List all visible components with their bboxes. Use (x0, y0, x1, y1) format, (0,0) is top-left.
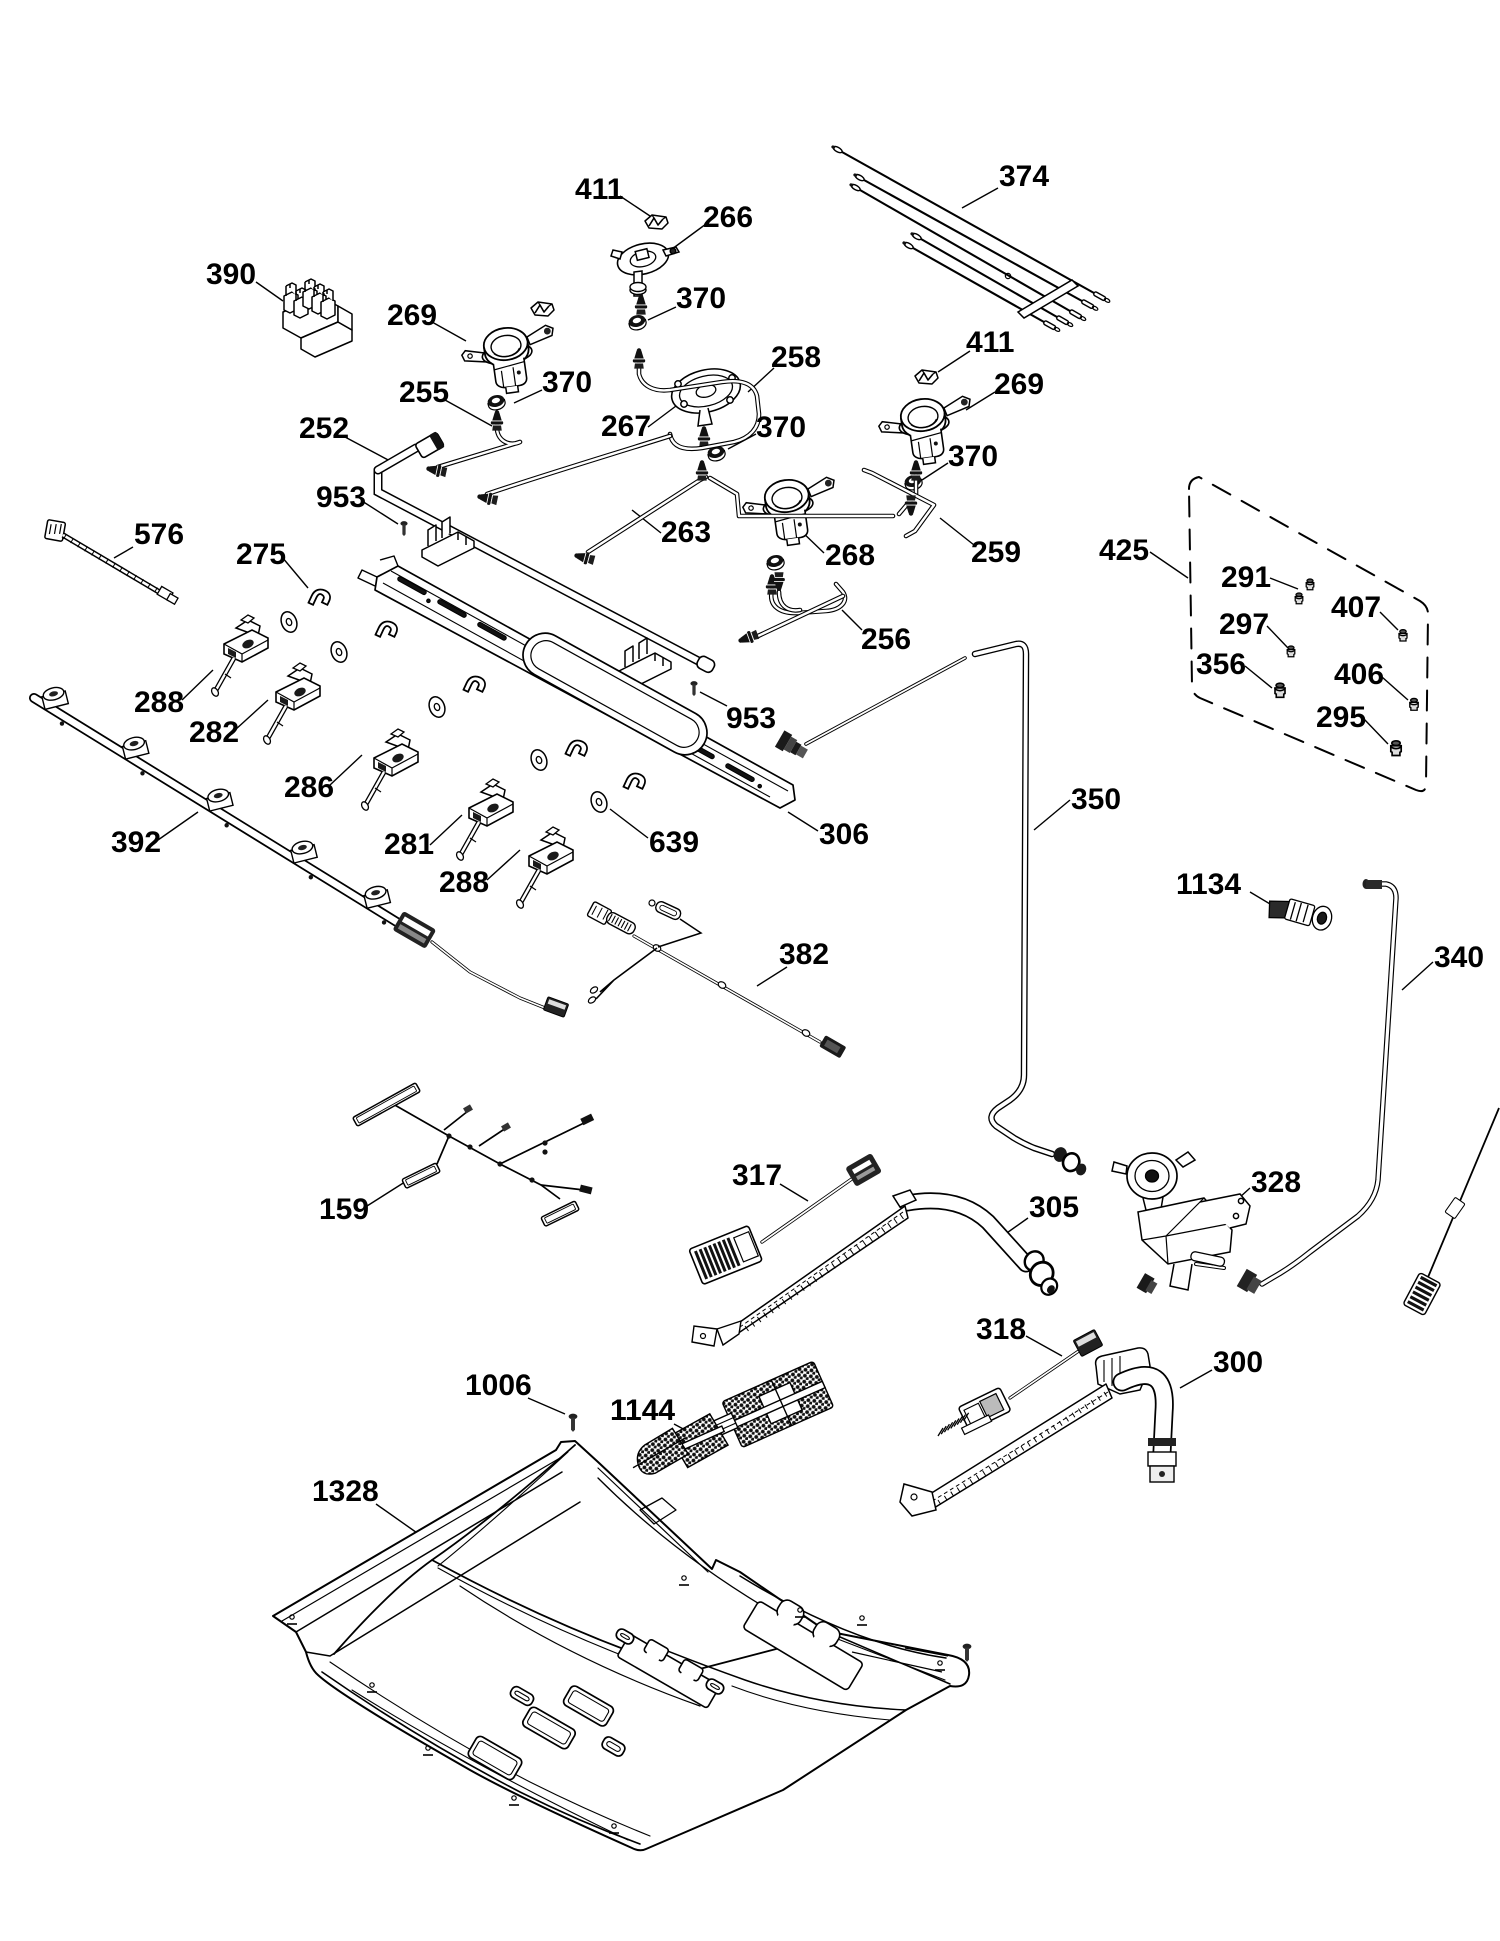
svg-text:258: 258 (771, 341, 821, 374)
svg-text:953: 953 (726, 702, 776, 735)
svg-text:288: 288 (134, 686, 184, 719)
svg-text:639: 639 (649, 826, 699, 859)
svg-text:263: 263 (661, 516, 711, 549)
svg-text:1134: 1134 (1176, 868, 1241, 901)
svg-text:317: 317 (732, 1159, 782, 1192)
svg-text:411: 411 (575, 173, 623, 206)
svg-text:370: 370 (756, 411, 806, 444)
svg-text:576: 576 (134, 518, 184, 551)
svg-text:288: 288 (439, 866, 489, 899)
svg-text:340: 340 (1434, 941, 1484, 974)
svg-text:1144: 1144 (610, 1394, 675, 1427)
svg-text:159: 159 (319, 1193, 369, 1226)
svg-text:252: 252 (299, 412, 349, 445)
svg-text:390: 390 (206, 258, 256, 291)
svg-text:370: 370 (948, 440, 998, 473)
svg-text:318: 318 (976, 1313, 1026, 1346)
svg-text:392: 392 (111, 826, 161, 859)
svg-text:281: 281 (384, 828, 434, 861)
svg-text:291: 291 (1221, 561, 1271, 594)
svg-text:1328: 1328 (312, 1475, 379, 1508)
svg-text:411: 411 (966, 326, 1014, 359)
svg-text:297: 297 (1219, 608, 1269, 641)
svg-text:350: 350 (1071, 783, 1121, 816)
svg-text:406: 406 (1334, 658, 1384, 691)
svg-text:1006: 1006 (465, 1369, 532, 1402)
svg-text:305: 305 (1029, 1191, 1079, 1224)
svg-text:953: 953 (316, 481, 366, 514)
svg-text:282: 282 (189, 716, 239, 749)
svg-text:275: 275 (236, 538, 286, 571)
svg-text:356: 356 (1196, 648, 1246, 681)
svg-text:382: 382 (779, 938, 829, 971)
svg-text:256: 256 (861, 623, 911, 656)
svg-text:267: 267 (601, 410, 651, 443)
svg-text:370: 370 (676, 282, 726, 315)
svg-text:295: 295 (1316, 701, 1366, 734)
svg-text:328: 328 (1251, 1166, 1301, 1199)
svg-text:266: 266 (703, 201, 753, 234)
svg-text:259: 259 (971, 536, 1021, 569)
svg-text:425: 425 (1099, 534, 1149, 567)
svg-text:407: 407 (1331, 591, 1381, 624)
svg-text:300: 300 (1213, 1346, 1263, 1379)
svg-text:269: 269 (994, 368, 1044, 401)
svg-text:255: 255 (399, 376, 449, 409)
svg-text:268: 268 (825, 539, 875, 572)
svg-text:306: 306 (819, 818, 869, 851)
svg-text:286: 286 (284, 771, 334, 804)
svg-text:269: 269 (387, 299, 437, 332)
svg-text:374: 374 (999, 160, 1049, 193)
svg-text:370: 370 (542, 366, 592, 399)
